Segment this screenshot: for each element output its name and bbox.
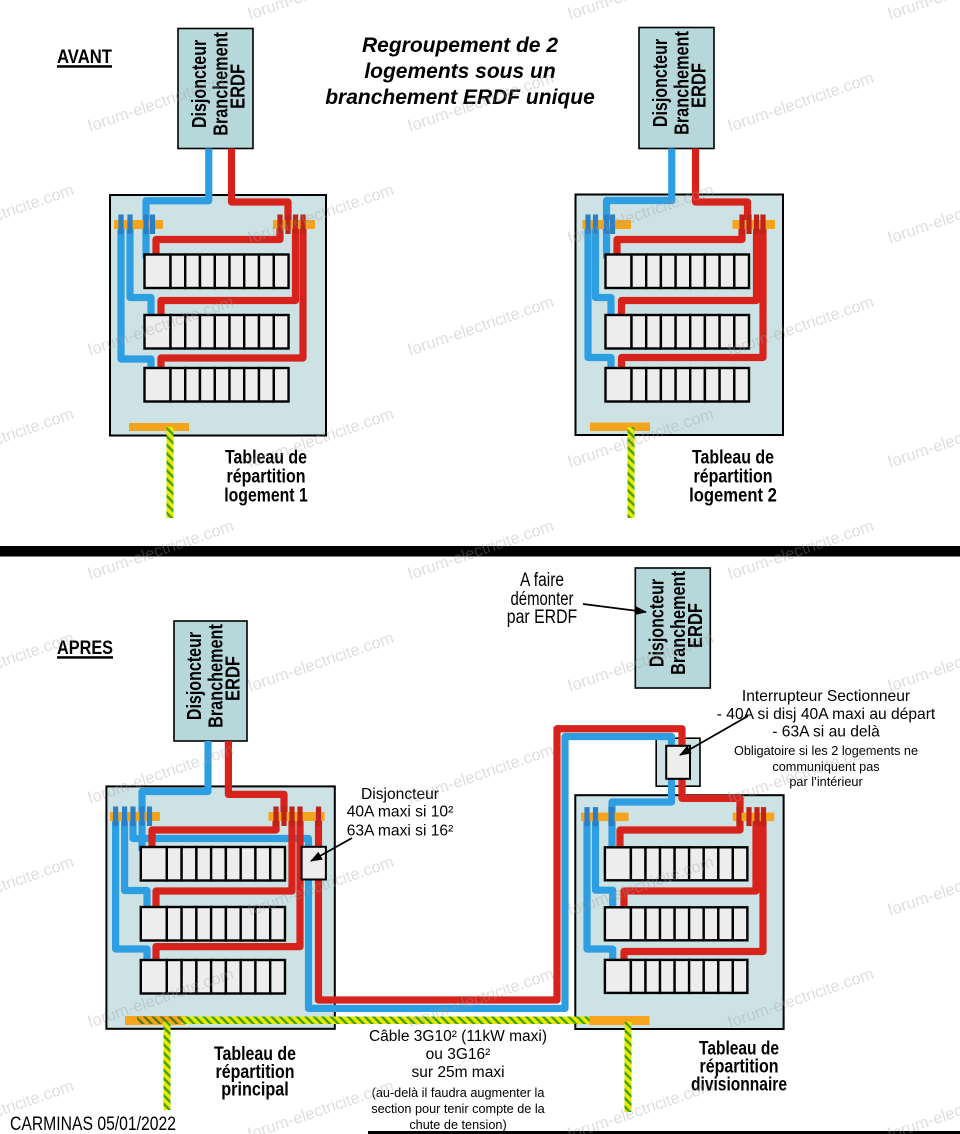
- svg-text:Câble 3G10² (11kW maxi): Câble 3G10² (11kW maxi): [369, 1028, 547, 1045]
- svg-text:logement 1: logement 1: [224, 486, 308, 507]
- svg-text:Regroupement de 2: Regroupement de 2: [362, 34, 558, 57]
- svg-text:- 40A si disj 40A maxi au dépa: - 40A si disj 40A maxi au départ: [717, 706, 936, 723]
- svg-text:63A maxi si 16²: 63A maxi si 16²: [347, 823, 454, 840]
- svg-text:CARMINAS 05/01/2022: CARMINAS 05/01/2022: [10, 1114, 176, 1134]
- svg-text:Tableau de: Tableau de: [692, 448, 774, 469]
- svg-text:40A maxi si 10²: 40A maxi si 10²: [347, 804, 454, 821]
- svg-text:section pour tenir compte de l: section pour tenir compte de la: [371, 1102, 545, 1116]
- svg-text:- 63A si au delà: - 63A si au delà: [772, 724, 880, 741]
- svg-text:ou 3G16²: ou 3G16²: [426, 1046, 491, 1063]
- svg-text:ERDF: ERDF: [222, 656, 245, 701]
- svg-text:par ERDF: par ERDF: [507, 607, 578, 628]
- svg-text:(au-delà il faudra augmenter: (au-delà il faudra augmenter la: [372, 1086, 546, 1100]
- svg-text:principal: principal: [221, 1080, 289, 1101]
- svg-text:sur 25m maxi: sur 25m maxi: [411, 1064, 504, 1081]
- svg-text:Interrupteur Sectionneur: Interrupteur Sectionneur: [742, 688, 910, 705]
- svg-text:Disjoncteur: Disjoncteur: [649, 39, 672, 127]
- svg-text:répartition: répartition: [694, 467, 773, 488]
- svg-text:A faire: A faire: [520, 570, 564, 591]
- svg-text:ERDF: ERDF: [688, 63, 711, 108]
- svg-text:Disjoncteur: Disjoncteur: [183, 632, 206, 720]
- svg-text:AVANT: AVANT: [57, 47, 112, 68]
- svg-text:logement 2: logement 2: [689, 486, 777, 507]
- svg-text:répartition: répartition: [227, 467, 306, 488]
- svg-text:chute de tension): chute de tension): [409, 1118, 506, 1132]
